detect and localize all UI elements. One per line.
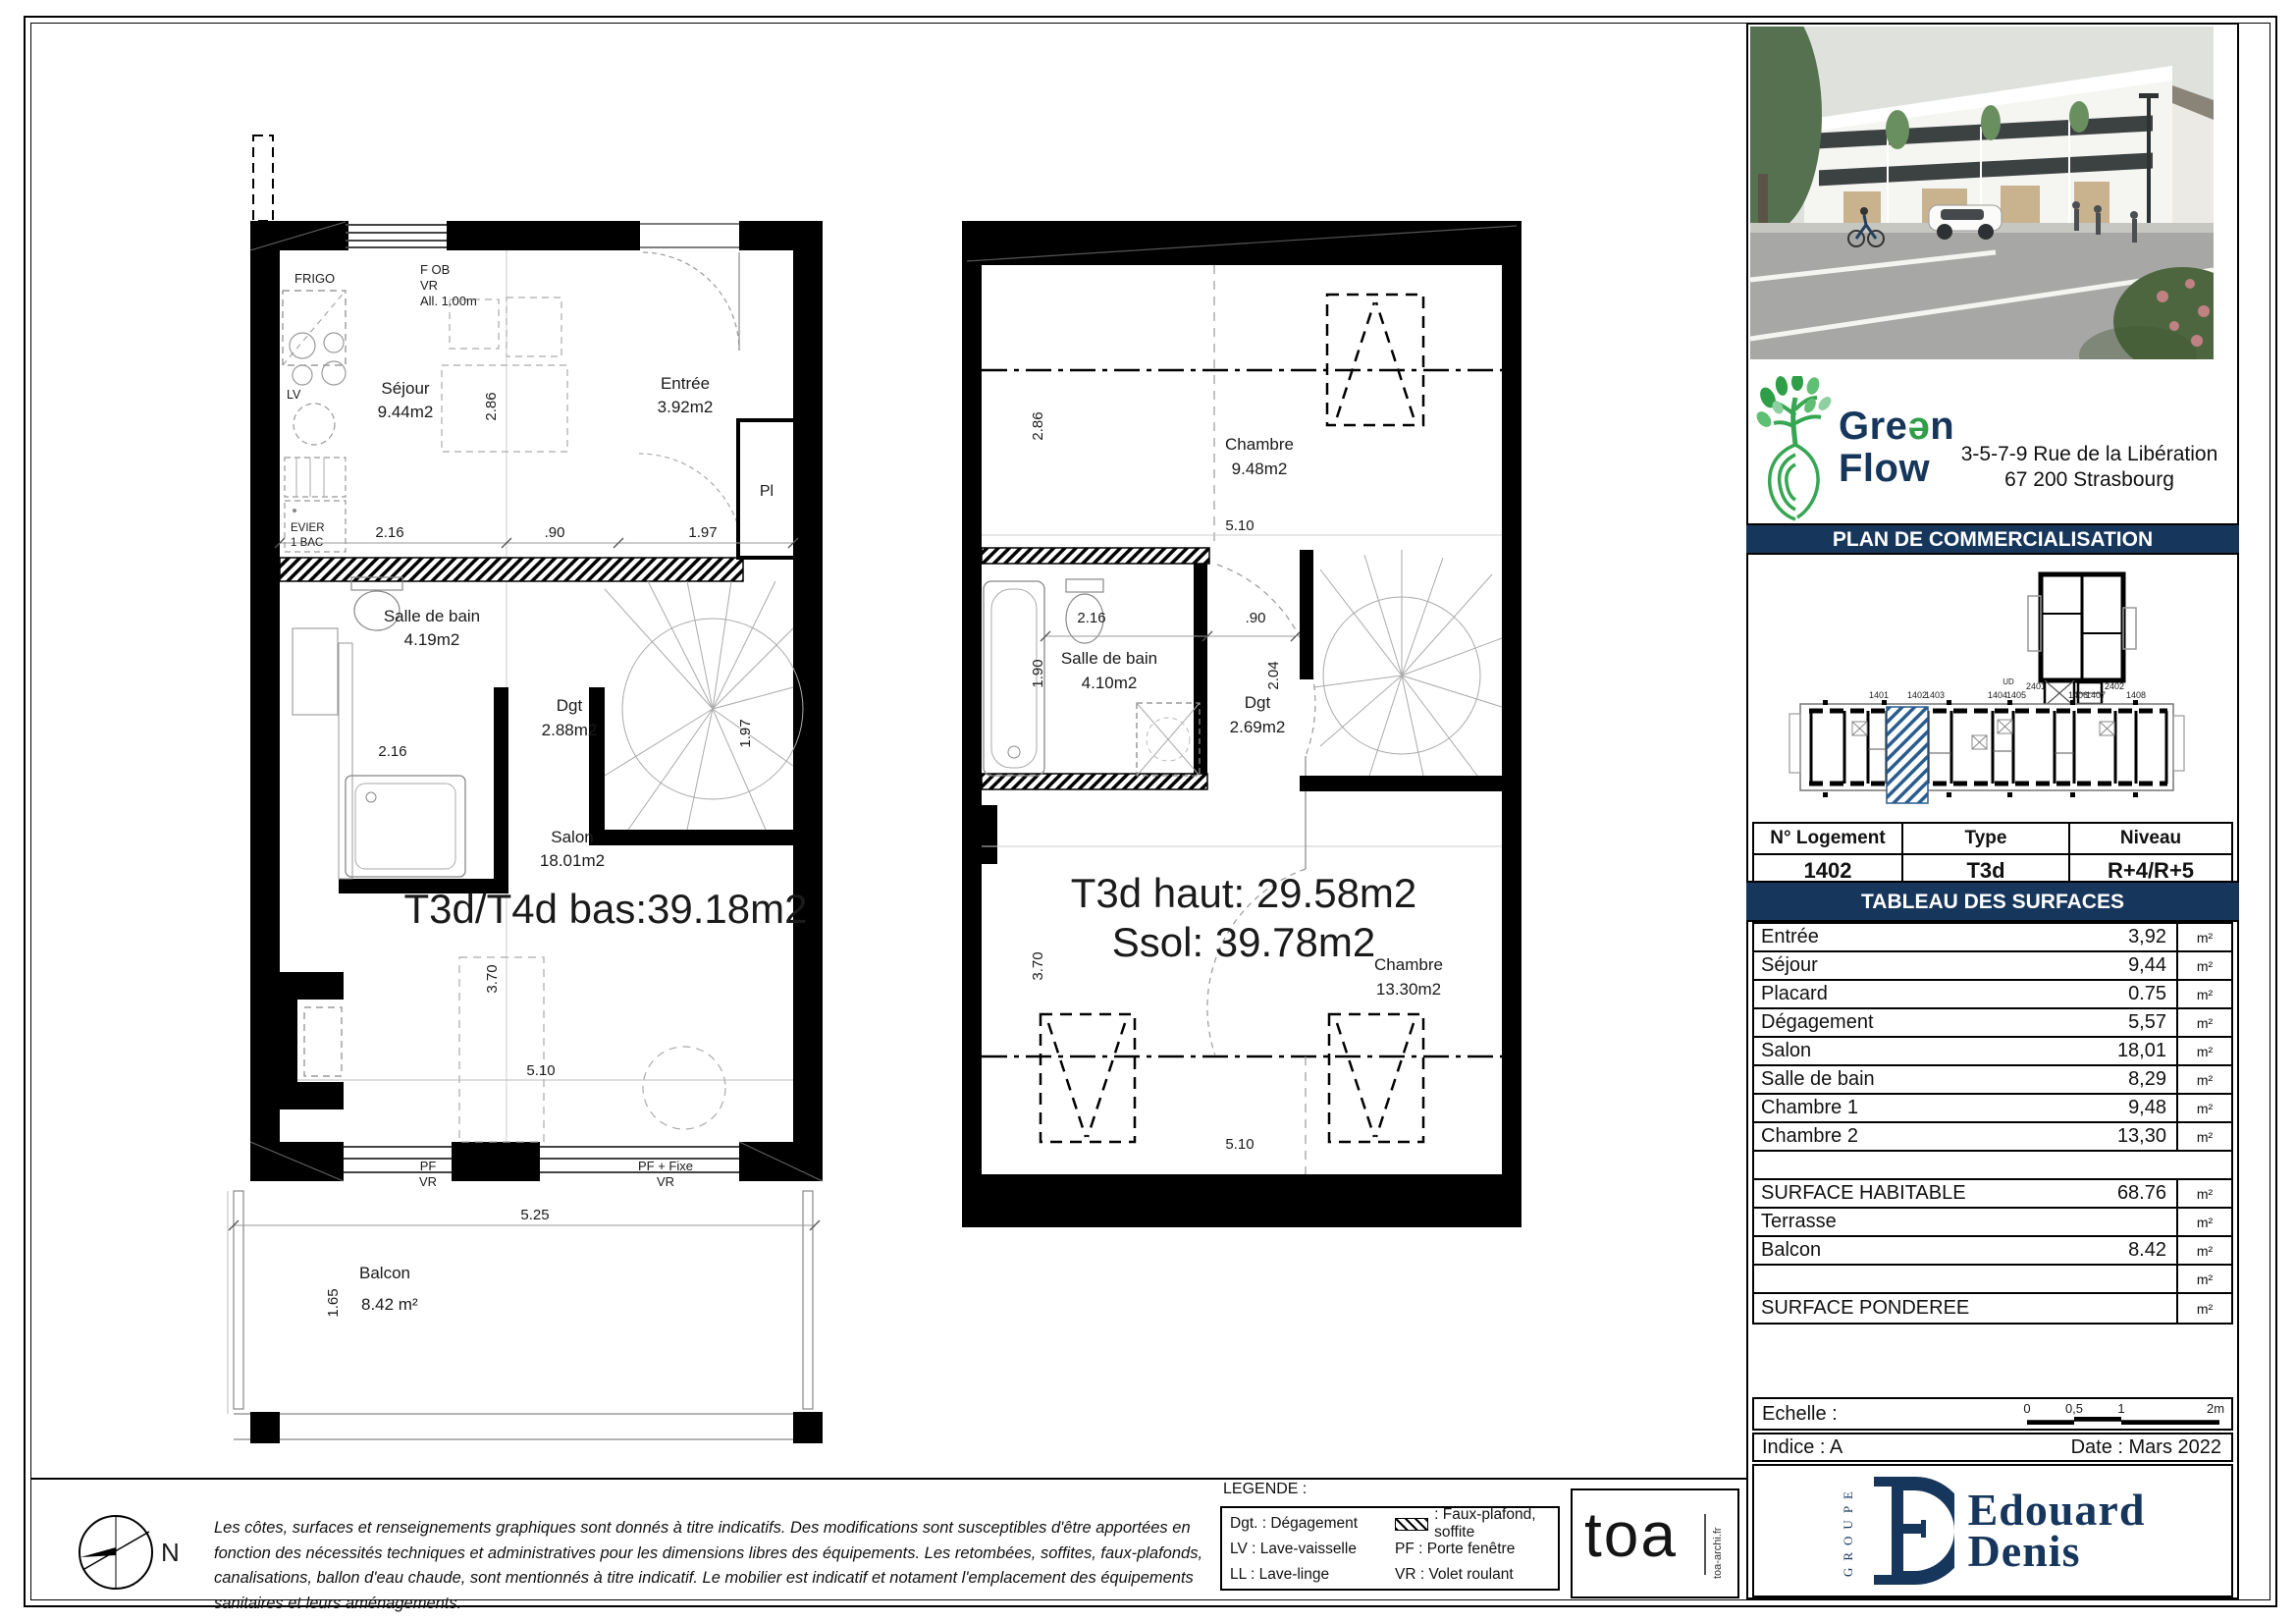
legend-box: Dgt. : Dégagement : Faux-plafond, soffit… xyxy=(1220,1506,1560,1591)
svg-text:18.01m2: 18.01m2 xyxy=(540,851,605,870)
logement-header: Type xyxy=(1901,822,2070,855)
svg-text:Ssol: 39.78m2: Ssol: 39.78m2 xyxy=(1112,919,1376,965)
svg-text:.90: .90 xyxy=(545,524,565,541)
svg-text:5.10: 5.10 xyxy=(1225,517,1254,534)
legend-row: Dgt. : Dégagement : Faux-plafond, soffit… xyxy=(1222,1511,1558,1537)
svg-text:2.16: 2.16 xyxy=(1077,610,1105,626)
svg-text:All. 1.00m: All. 1.00m xyxy=(420,294,477,308)
surface-row: Dégagement5,57m² xyxy=(1754,1009,2231,1038)
svg-text:VR: VR xyxy=(419,1174,437,1189)
svg-text:T3d haut: 29.58m2: T3d haut: 29.58m2 xyxy=(1071,870,1417,916)
plan-sheet: FRIGO F OB VR All. 1.00m Séjour 9.44m2 2… xyxy=(0,0,2296,1623)
svg-text:Chambre: Chambre xyxy=(1374,955,1443,974)
svg-text:2.16: 2.16 xyxy=(375,524,403,541)
svg-text:1407: 1407 xyxy=(2086,690,2106,700)
edouard-denis-logo: GROUPE Edouard Denis xyxy=(1752,1464,2233,1597)
surface-row: Séjour9,44m² xyxy=(1754,952,2231,981)
svg-text:8.42 m²: 8.42 m² xyxy=(361,1295,418,1314)
svg-text:2m: 2m xyxy=(2207,1401,2224,1416)
svg-text:9.48m2: 9.48m2 xyxy=(1232,460,1288,478)
svg-text:VR: VR xyxy=(657,1174,674,1189)
svg-text:N: N xyxy=(161,1538,180,1567)
svg-text:1401: 1401 xyxy=(1869,690,1889,700)
floor-plans-drawing: FRIGO F OB VR All. 1.00m Séjour 9.44m2 2… xyxy=(0,0,1747,1483)
svg-text:5.25: 5.25 xyxy=(520,1207,549,1223)
svg-text:PF + Fixe: PF + Fixe xyxy=(638,1159,693,1173)
toa-divider xyxy=(1704,1514,1706,1575)
ed-wordmark: Edouard Denis xyxy=(1968,1489,2146,1573)
svg-text:Entrée: Entrée xyxy=(661,374,710,393)
logement-header: Niveau xyxy=(2068,822,2233,855)
svg-text:1.65: 1.65 xyxy=(325,1288,342,1317)
svg-text:13.30m2: 13.30m2 xyxy=(1376,980,1441,999)
logement-table: N° Logement Type Niveau 1402 T3d R+4/R+5 xyxy=(1754,824,2233,888)
svg-text:2402: 2402 xyxy=(2105,681,2124,691)
svg-text:3.70: 3.70 xyxy=(1030,951,1046,980)
surfaces-table: Entrée3,92m² Séjour9,44m² Placard0.75m² … xyxy=(1752,922,2233,1325)
svg-text:Pl: Pl xyxy=(760,483,774,500)
project-address: 3-5-7-9 Rue de la Libération 67 200 Stra… xyxy=(1949,442,2229,493)
svg-text:2.88m2: 2.88m2 xyxy=(542,721,598,739)
logement-header: N° Logement xyxy=(1752,822,1903,855)
svg-text:Salle de bain: Salle de bain xyxy=(1061,649,1157,668)
toa-logo-box: toa toa-archi.fr xyxy=(1571,1488,1739,1598)
ed-monogram-icon xyxy=(1870,1475,1954,1587)
svg-text:1403: 1403 xyxy=(1925,690,1945,700)
svg-text:4.19m2: 4.19m2 xyxy=(404,630,460,649)
surface-row: Salle de bain8,29m² xyxy=(1754,1066,2231,1095)
date-label: Date : Mars 2022 xyxy=(2071,1436,2221,1459)
left-plan xyxy=(228,135,823,1443)
building-photo xyxy=(1750,27,2214,359)
surface-row: SURFACE PONDEREEm² xyxy=(1754,1294,2231,1323)
surface-row: Balcon8.42m² xyxy=(1754,1237,2231,1266)
surface-row: Chambre 19,48m² xyxy=(1754,1095,2231,1123)
svg-text:1 BAC: 1 BAC xyxy=(291,537,323,549)
svg-text:2.04: 2.04 xyxy=(1265,661,1282,689)
svg-text:1404: 1404 xyxy=(1988,690,2007,700)
surface-row: m² xyxy=(1754,1266,2231,1294)
svg-text:1408: 1408 xyxy=(2126,690,2146,700)
svg-text:Balcon: Balcon xyxy=(359,1264,410,1282)
svg-text:2.69m2: 2.69m2 xyxy=(1230,718,1286,736)
svg-text:FRIGO: FRIGO xyxy=(294,271,335,286)
surfaces-banner: TABLEAU DES SURFACES xyxy=(1746,881,2239,922)
svg-text:2.86: 2.86 xyxy=(483,392,500,420)
groupe-label: GROUPE xyxy=(1841,1485,1856,1577)
surface-row: SURFACE HABITABLE68.76m² xyxy=(1754,1180,2231,1209)
svg-text:1.97: 1.97 xyxy=(737,719,754,747)
svg-text:1: 1 xyxy=(2117,1401,2124,1416)
key-plan: 1401 1402 1403 1404 1405 1406 1407 1408 … xyxy=(1750,557,2235,822)
surface-row: Terrassem² xyxy=(1754,1209,2231,1237)
svg-text:UD: UD xyxy=(2002,677,2014,686)
svg-text:4.10m2: 4.10m2 xyxy=(1082,674,1138,692)
surface-row: Chambre 213,30m² xyxy=(1754,1123,2231,1152)
svg-text:0,5: 0,5 xyxy=(2065,1401,2083,1416)
svg-text:.90: .90 xyxy=(1246,610,1266,626)
scale-label: Echelle : xyxy=(1762,1403,1838,1426)
svg-text:LV: LV xyxy=(287,388,301,402)
legend-row: LV : Lave-vaisselle PF : Porte fenêtre xyxy=(1222,1537,1558,1562)
svg-text:0: 0 xyxy=(2023,1401,2030,1416)
svg-text:5.10: 5.10 xyxy=(1225,1136,1254,1153)
surface-row: Entrée3,92m² xyxy=(1754,924,2231,952)
svg-text:1.90: 1.90 xyxy=(1030,659,1046,687)
indice-label: Indice : A xyxy=(1762,1436,1842,1459)
svg-text:2.16: 2.16 xyxy=(378,743,406,760)
svg-text:3.92m2: 3.92m2 xyxy=(658,398,714,416)
svg-text:PF: PF xyxy=(420,1159,437,1173)
svg-text:Séjour: Séjour xyxy=(381,379,429,398)
svg-text:Salon: Salon xyxy=(551,828,593,846)
scale-row: Echelle : 0 0,5 1 2m xyxy=(1752,1397,2233,1431)
scale-bar: 0 0,5 1 2m xyxy=(2019,1401,2227,1429)
svg-text:Dgt: Dgt xyxy=(557,696,583,715)
svg-text:F OB: F OB xyxy=(420,262,450,277)
indice-row: Indice : A Date : Mars 2022 xyxy=(1752,1433,2233,1462)
svg-text:1405: 1405 xyxy=(2006,690,2026,700)
north-compass-icon: N xyxy=(75,1508,192,1596)
surface-row-spacer xyxy=(1754,1152,2231,1180)
svg-text:1.97: 1.97 xyxy=(688,524,717,541)
svg-text:9.44m2: 9.44m2 xyxy=(378,403,434,421)
greenflow-tree-icon xyxy=(1756,376,1835,523)
svg-text:Salle de bain: Salle de bain xyxy=(384,607,480,625)
plan-banner: PLAN DE COMMERCIALISATION xyxy=(1746,523,2239,555)
svg-text:VR: VR xyxy=(420,278,438,293)
legend-title: LEGENDE : xyxy=(1223,1481,1307,1498)
faux-plafond-hatch-icon xyxy=(1395,1518,1428,1531)
svg-text:T3d/T4d bas:39.18m2: T3d/T4d bas:39.18m2 xyxy=(404,886,808,932)
toa-wordmark: toa xyxy=(1584,1498,1678,1571)
svg-text:3.70: 3.70 xyxy=(484,964,501,993)
svg-text:Chambre: Chambre xyxy=(1225,435,1294,454)
svg-text:EVIER: EVIER xyxy=(291,522,325,534)
svg-text:2401: 2401 xyxy=(2026,681,2046,691)
greenflow-wordmark: Greən Flow xyxy=(1839,406,1954,490)
sidebar: Greən Flow 3-5-7-9 Rue de la Libération … xyxy=(1746,23,2239,1599)
disclaimer-text: Les côtes, surfaces et renseignements gr… xyxy=(214,1516,1211,1616)
surface-row: Salon18,01m² xyxy=(1754,1038,2231,1066)
svg-text:2.86: 2.86 xyxy=(1030,411,1046,440)
svg-text:5.10: 5.10 xyxy=(526,1062,555,1079)
legend-row: LL : Lave-linge VR : Volet roulant xyxy=(1222,1562,1558,1588)
toa-url: toa-archi.fr xyxy=(1712,1510,1724,1579)
svg-text:Dgt: Dgt xyxy=(1245,693,1271,712)
surface-row: Placard0.75m² xyxy=(1754,981,2231,1009)
